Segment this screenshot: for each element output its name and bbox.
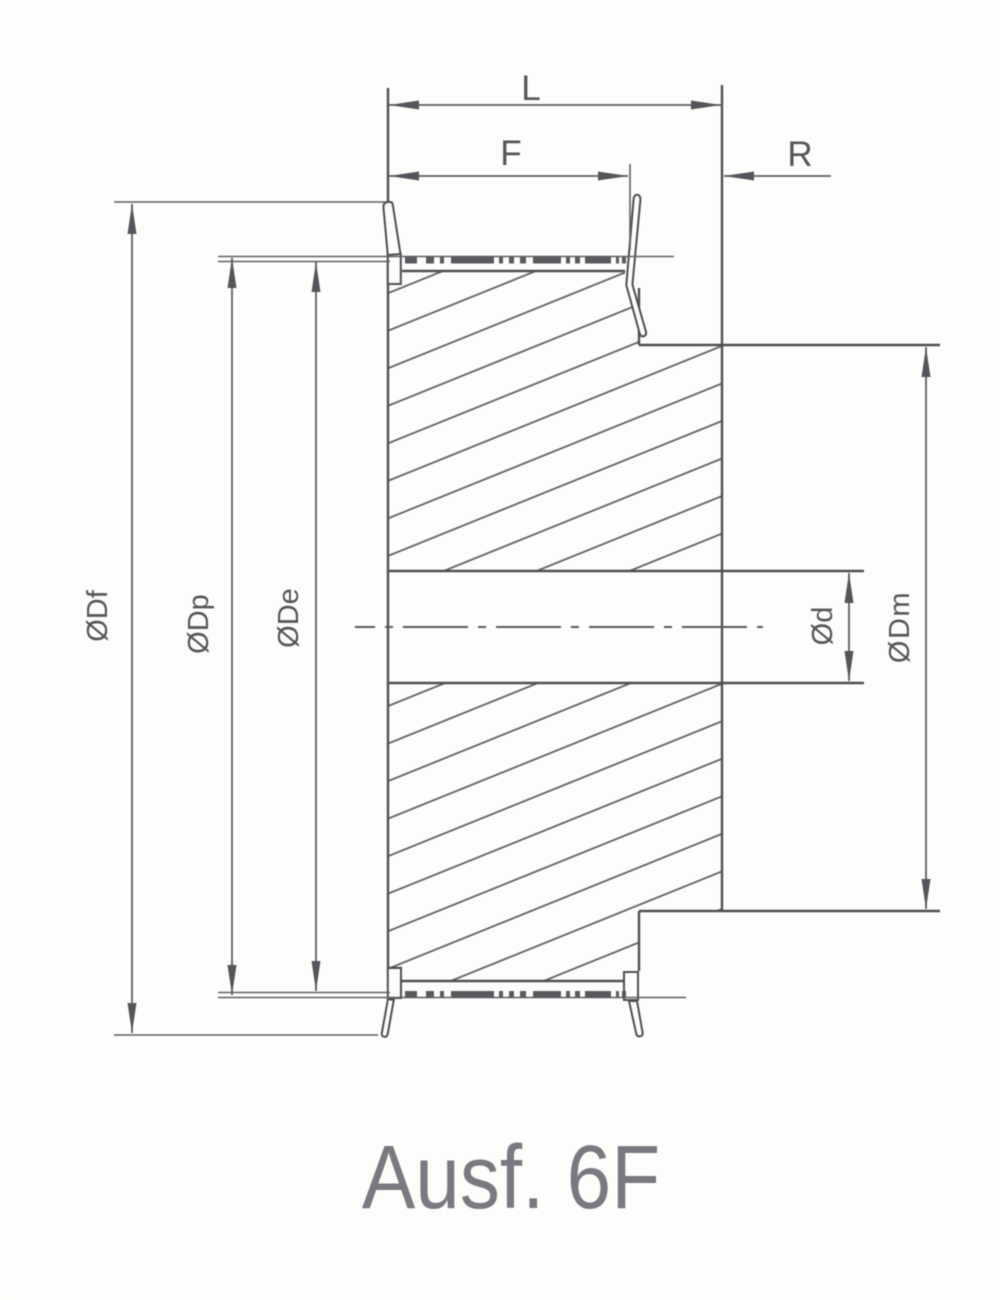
svg-text:L: L [521,69,540,108]
svg-text:ØDp: ØDp [183,594,215,654]
svg-text:Ausf. 6F: Ausf. 6F [362,1128,660,1228]
svg-text:Ød: Ød [807,607,839,646]
svg-text:ØDf: ØDf [82,589,114,642]
svg-text:F: F [500,134,521,173]
svg-text:ØDe: ØDe [273,588,305,648]
svg-text:ØDm: ØDm [884,591,916,663]
svg-text:R: R [787,135,812,174]
